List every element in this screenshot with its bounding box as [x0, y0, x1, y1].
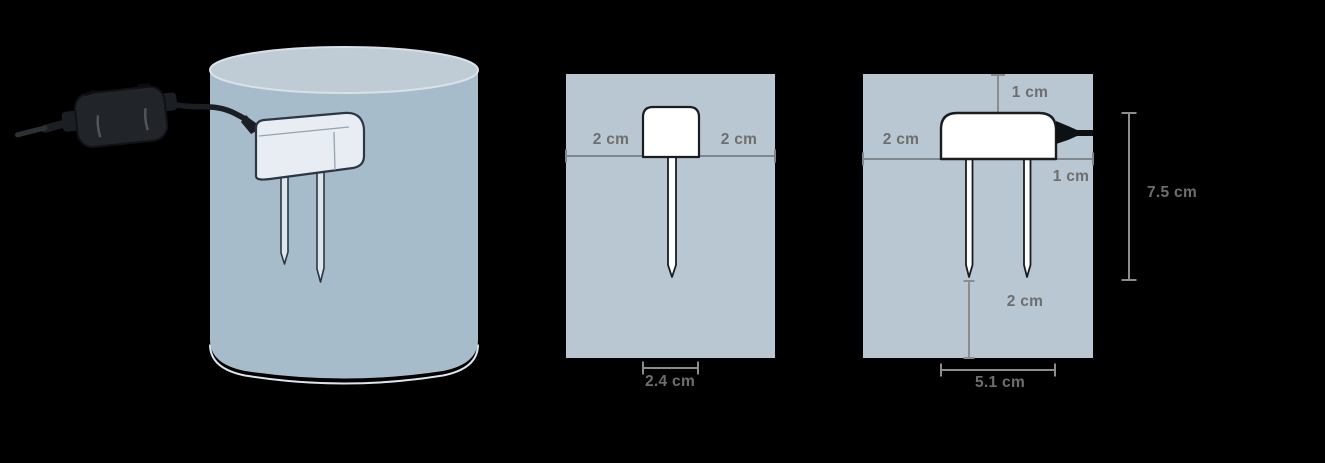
pot-photo-illustration [14, 47, 478, 384]
cable-connector [14, 82, 181, 155]
front-sensor-prong-left [966, 159, 973, 277]
front-tip-clearance-label: 2 cm [1007, 293, 1044, 311]
front-sensor-head [941, 113, 1056, 159]
front-width-label: 5.1 cm [975, 374, 1025, 392]
sensor-3d-prong-left [281, 170, 288, 264]
side-sensor-head [643, 107, 699, 157]
front-sensor-prong-right [1024, 159, 1031, 277]
cable-left-tip [17, 128, 45, 135]
side-sensor-prong [668, 157, 676, 277]
pot-cylinder-top [210, 47, 478, 93]
side-view-diagram [566, 74, 775, 375]
front-height-dimension [1122, 113, 1137, 280]
front-left-margin-label: 2 cm [883, 131, 920, 149]
front-height-label: 7.5 cm [1147, 184, 1197, 202]
sensor-3d-prong-right [317, 172, 324, 282]
cable-connector-left-stub [45, 124, 63, 129]
cable-connector-seam-2 [139, 85, 149, 86]
front-right-margin-label: 1 cm [1053, 168, 1090, 186]
sensor-placement-diagram: 2 cm 2 cm 2.4 cm 1 cm 2 cm 1 cm 7.5 cm 2… [0, 0, 1325, 463]
side-width-label: 2.4 cm [645, 373, 695, 391]
side-left-margin-label: 2 cm [593, 131, 630, 149]
diagram-artwork [0, 0, 1325, 463]
front-top-clearance-label: 1 cm [1012, 84, 1049, 102]
front-view-diagram [863, 74, 1137, 377]
sensor-3d-head [256, 113, 364, 180]
side-right-margin-label: 2 cm [721, 131, 758, 149]
